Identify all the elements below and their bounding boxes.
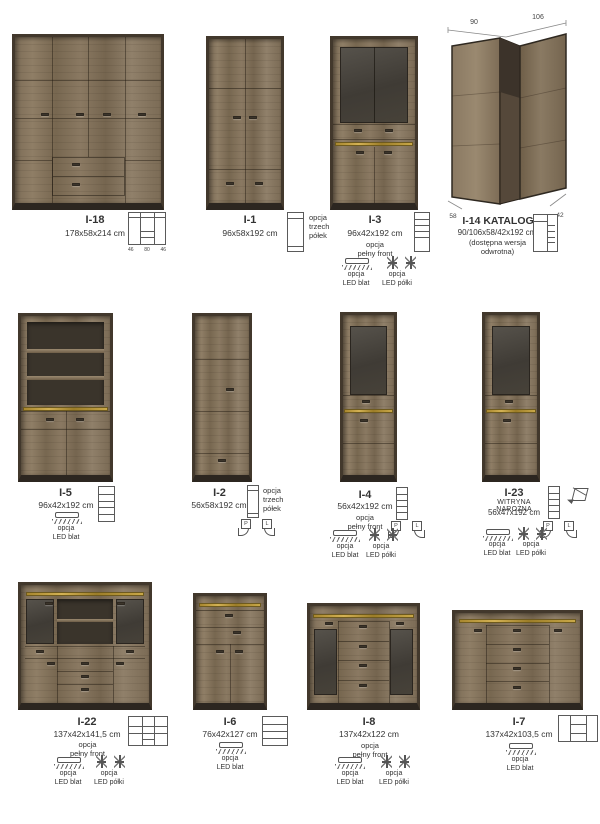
schematic-i1 <box>287 212 304 252</box>
product-dims-i3: 96x42x192 cm <box>335 228 415 238</box>
product-dims-i5: 96x42x192 cm <box>30 500 102 510</box>
led-blat-label-i3: opcja LED blat <box>334 271 378 289</box>
led-blat-label-i6: opcja LED blat <box>206 755 254 773</box>
product-photo-i6 <box>193 593 267 710</box>
led-polki-label-i22: opcja LED półki <box>88 770 130 788</box>
product-photo-i22 <box>18 582 152 710</box>
product-name-i22: I-22 <box>58 716 116 728</box>
product-name-i1: I-1 <box>215 214 285 226</box>
schematic-i23 <box>548 486 560 519</box>
door-right-icon: P <box>238 519 252 536</box>
led-blat-label-i5: opcja LED blat <box>42 525 90 543</box>
led-blat-label-i7: opcja LED blat <box>496 756 544 774</box>
door-left-icon: L <box>259 519 273 536</box>
product-photo-i23 <box>482 312 540 482</box>
product-name-i23: I-23 <box>493 487 535 499</box>
schematic-i18 <box>128 212 166 245</box>
schematic-i14 <box>533 214 558 252</box>
option-text-i2: opcja trzech półek <box>263 486 303 513</box>
product-photo-i5 <box>18 313 113 482</box>
led-polki-label-i3: opcja LED półki <box>377 271 417 289</box>
product-name-i4: I-4 <box>340 489 390 501</box>
product-name-i3: I-3 <box>340 214 410 226</box>
schematic-i2 <box>247 485 259 518</box>
product-name-i8: I-8 <box>343 716 395 728</box>
led-blat-icon <box>335 757 365 769</box>
led-blat-icon <box>52 512 82 524</box>
led-blat-icon <box>54 757 84 769</box>
product-photo-i4 <box>340 312 397 482</box>
led-blat-icon <box>483 529 513 541</box>
product-dims-i23: 56x47x192 cm <box>486 508 542 517</box>
product-dims-i7: 137x42x103,5 cm <box>484 729 554 739</box>
schematic-i22 <box>128 716 168 746</box>
door-side-icons-i2: P L <box>238 519 273 536</box>
schematic-i4 <box>396 487 408 520</box>
schematic-i6 <box>262 716 288 746</box>
led-polki-label-i4: opcja LED półki <box>360 543 402 561</box>
product-dims-i6: 76x42x127 cm <box>200 729 260 739</box>
dim-90: 90 <box>470 19 478 26</box>
schematic-i5 <box>98 486 115 522</box>
led-polki-icon <box>96 755 125 768</box>
product-photo-i3 <box>330 36 418 210</box>
product-dims-i1: 96x58x192 cm <box>210 228 290 238</box>
led-polki-icon <box>369 528 398 541</box>
led-blat-icon <box>216 742 246 754</box>
product-name-i5: I-5 <box>38 487 93 499</box>
product-photo-i14: 90 106 58 42 <box>444 8 570 220</box>
product-name-i7: I-7 <box>493 716 545 728</box>
schematic-i7 <box>558 715 598 742</box>
product-dims-i22: 137x42x141,5 cm <box>48 729 126 739</box>
product-photo-i7 <box>452 610 583 710</box>
product-photo-i1 <box>206 36 284 210</box>
led-blat-icon <box>330 530 360 542</box>
schematic-i3 <box>414 212 430 252</box>
led-blat-icon <box>342 258 372 270</box>
product-name-i14: I-14 KATALOG <box>450 215 546 227</box>
product-note-i14: (dostępna wersja odwrotna) <box>450 238 545 256</box>
product-dims-i4: 56x42x192 cm <box>334 501 396 511</box>
product-dims-i2: 56x58x192 cm <box>188 500 250 510</box>
schematic-i18-widths: 468046 <box>128 247 166 253</box>
corner-unit-icon <box>566 487 589 504</box>
door-left-icon: L <box>561 521 575 538</box>
led-polki-icon <box>381 755 410 768</box>
led-blat-label-i22: opcja LED blat <box>44 770 92 788</box>
product-name-i2: I-2 <box>192 487 247 499</box>
led-blat-icon <box>506 743 536 755</box>
led-polki-label-i23: opcja LED półki <box>510 541 552 559</box>
product-photo-i18 <box>12 34 164 210</box>
product-name-i6: I-6 <box>204 716 256 728</box>
door-left-icon: L <box>409 521 423 538</box>
led-polki-label-i8: opcja LED półki <box>372 770 416 788</box>
led-polki-icon <box>387 256 416 269</box>
dim-106: 106 <box>532 14 544 21</box>
product-dims-i8: 137x42x122 cm <box>336 729 402 739</box>
led-blat-label-i8: opcja LED blat <box>326 770 374 788</box>
product-photo-i8 <box>307 603 420 710</box>
product-name-i18: I-18 <box>55 214 135 226</box>
led-polki-icon <box>518 527 547 540</box>
product-photo-i2 <box>192 313 252 482</box>
catalog-page: 90 106 58 42 I-18 178x58x214 cm 468046 I… <box>0 0 600 824</box>
